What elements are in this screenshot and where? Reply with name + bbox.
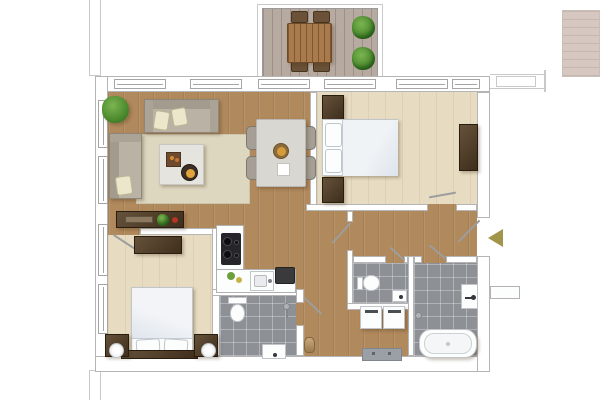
wardrobe — [459, 124, 478, 171]
tray — [166, 152, 181, 167]
fruit — [277, 147, 286, 156]
pillow — [325, 149, 342, 173]
dryer — [383, 306, 405, 329]
wall — [140, 228, 220, 235]
shrub — [352, 16, 375, 39]
window — [324, 79, 376, 89]
sofa-small — [109, 133, 142, 199]
washbasin — [461, 284, 478, 309]
sketch-wall-tick — [544, 70, 546, 92]
dryer-slot — [388, 310, 401, 313]
wall — [477, 92, 490, 218]
wall — [296, 289, 304, 303]
window — [396, 79, 448, 89]
wall — [310, 92, 317, 211]
burner — [223, 237, 232, 246]
neighbor-balcony-deck — [562, 10, 600, 77]
sofa-armrest — [110, 134, 141, 142]
faucet — [399, 295, 403, 299]
plate — [277, 163, 290, 176]
window — [98, 156, 108, 204]
sofa-cushion — [153, 110, 171, 131]
wall — [456, 204, 477, 211]
sketch-wall-extension — [89, 370, 101, 400]
burner — [223, 250, 232, 259]
sideboard — [116, 211, 184, 228]
decor-item — [304, 337, 315, 353]
shower-head — [415, 312, 422, 319]
toilet-tank — [228, 297, 247, 304]
sketch-window-outline — [496, 76, 536, 87]
washer-slot — [365, 310, 378, 313]
window — [190, 79, 242, 89]
bed-2 — [131, 287, 193, 351]
bedside-lamp — [109, 343, 124, 358]
window — [258, 79, 310, 89]
sofa-armrest — [145, 100, 153, 132]
window — [98, 224, 108, 276]
kitchen-sink — [250, 271, 274, 291]
window — [98, 284, 108, 334]
shower-hose — [286, 310, 288, 318]
bowl — [181, 164, 198, 181]
tray-item — [170, 156, 174, 160]
wall — [347, 211, 353, 222]
corner-basin — [392, 290, 407, 302]
fruit-bowl — [273, 143, 289, 159]
drain — [446, 342, 450, 346]
faucet-spout — [465, 297, 472, 299]
toilet — [363, 275, 380, 291]
fruit — [227, 272, 235, 280]
sofa-armrest — [210, 100, 218, 132]
coffee-table — [159, 144, 204, 185]
balcony-chair — [313, 11, 330, 23]
faucet — [273, 353, 277, 357]
balcony-chair — [291, 11, 308, 23]
sideboard-tray — [125, 216, 153, 223]
wall — [477, 256, 490, 372]
countertop-appliance — [275, 267, 295, 284]
radiator-valve — [388, 352, 391, 355]
entrance-arrow-icon — [488, 229, 503, 247]
bedside-lamp — [201, 343, 216, 358]
washing-machine — [360, 306, 382, 329]
washbasin — [262, 344, 286, 359]
window — [452, 79, 480, 89]
floor-plan — [0, 0, 600, 400]
wall — [414, 256, 422, 263]
tray-item — [175, 158, 179, 162]
wall — [353, 256, 386, 263]
bathtub — [419, 329, 477, 358]
shower-head — [283, 303, 290, 310]
burner — [234, 240, 239, 245]
duvet — [132, 288, 192, 339]
pillow — [325, 123, 342, 147]
wall — [296, 325, 304, 356]
toilet — [230, 304, 245, 322]
window — [114, 79, 166, 89]
bed-1 — [322, 119, 398, 176]
candle — [172, 217, 178, 223]
sketch-wall-extension — [89, 0, 101, 76]
headboard — [121, 350, 198, 359]
burner — [234, 253, 239, 258]
sofa-cushion — [171, 107, 189, 127]
balcony-table — [287, 23, 332, 63]
wall — [306, 204, 428, 211]
faucet — [268, 279, 272, 283]
exterior-ledge — [490, 286, 520, 299]
nightstand — [322, 177, 344, 203]
wall — [408, 256, 414, 356]
dining-table — [256, 119, 306, 187]
bowl-content — [186, 169, 195, 178]
houseplant — [102, 96, 129, 123]
radiator-valve — [372, 352, 375, 355]
hob — [221, 233, 241, 265]
duvet — [342, 120, 398, 176]
desk — [134, 236, 182, 254]
fruit — [236, 277, 242, 283]
radiator — [362, 348, 402, 361]
houseplant — [157, 214, 169, 226]
sofa-large — [144, 99, 219, 133]
nightstand — [322, 95, 344, 120]
wall — [446, 256, 477, 263]
shrub — [352, 47, 375, 70]
sink-basin — [254, 275, 267, 287]
sofa-cushion — [115, 175, 133, 196]
